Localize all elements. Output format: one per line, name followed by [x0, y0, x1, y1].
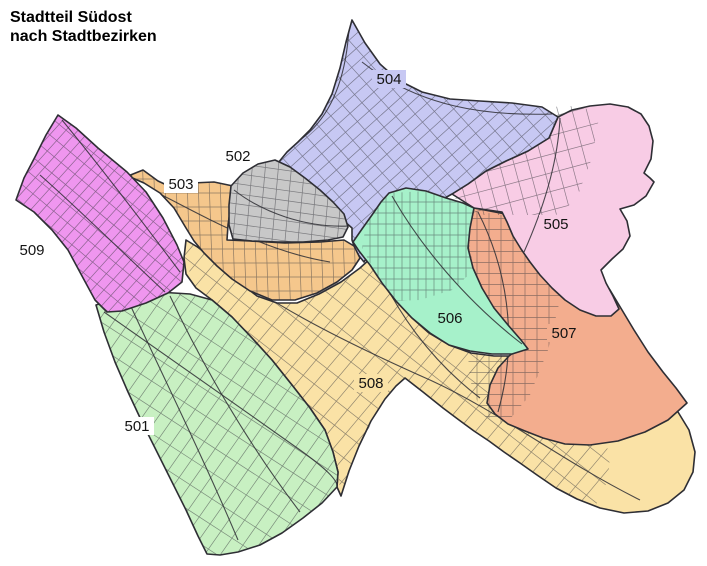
district-regions — [0, 0, 707, 566]
district-label-501: 501 — [124, 418, 149, 435]
district-label-503: 503 — [168, 176, 193, 193]
map-screen: 508501507505504506503502509 Stadtteil Sü… — [0, 0, 707, 566]
district-label-508: 508 — [358, 375, 383, 392]
district-label-509: 509 — [19, 242, 44, 259]
map-title-line2: nach Stadtbezirken — [10, 28, 157, 45]
district-label-506: 506 — [437, 310, 462, 327]
district-label-502: 502 — [225, 148, 250, 165]
district-label-507: 507 — [551, 325, 576, 342]
map-title-line1: Stadtteil Südost — [10, 9, 132, 26]
district-label-505: 505 — [543, 216, 568, 233]
district-label-504: 504 — [376, 71, 401, 88]
map-canvas: 508501507505504506503502509 Stadtteil Sü… — [0, 0, 707, 566]
